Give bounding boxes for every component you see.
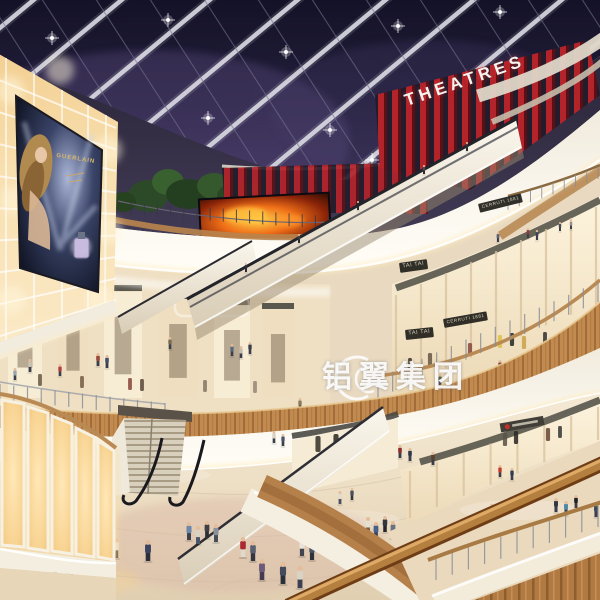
- person: [383, 519, 387, 526]
- person: [510, 470, 513, 475]
- person: [105, 358, 109, 363]
- person: [466, 144, 469, 148]
- mannequin: [514, 431, 518, 444]
- person: [570, 222, 573, 226]
- person: [559, 224, 562, 228]
- mannequin: [315, 436, 320, 452]
- mannequin: [80, 376, 84, 388]
- scene-canvas: [0, 0, 600, 600]
- mannequin: [503, 433, 507, 446]
- person: [240, 541, 246, 549]
- person: [186, 526, 191, 534]
- person: [272, 433, 275, 438]
- person: [205, 524, 210, 531]
- person: [564, 504, 568, 510]
- poster-model-face: [35, 147, 47, 163]
- person: [145, 544, 151, 553]
- person: [527, 230, 530, 234]
- person: [280, 566, 286, 575]
- person: [554, 501, 558, 507]
- person: [374, 525, 379, 532]
- person: [13, 370, 16, 375]
- person: [398, 448, 402, 453]
- mannequin: [140, 379, 144, 391]
- person: [96, 356, 100, 361]
- person: [245, 265, 248, 269]
- person: [497, 234, 500, 238]
- mannequin: [128, 378, 132, 390]
- mannequin: [558, 426, 562, 438]
- mall-atrium-rendering: THEATRES TAI TAI TAI TAI CERRUTI 1881 CE…: [0, 0, 600, 600]
- person: [281, 436, 284, 441]
- person: [536, 232, 539, 236]
- mannequin: [546, 428, 550, 441]
- mannequin: [253, 381, 257, 393]
- person: [213, 528, 218, 536]
- person: [230, 346, 233, 351]
- person: [195, 530, 200, 538]
- person: [431, 455, 435, 460]
- person: [298, 236, 301, 240]
- person: [248, 344, 251, 349]
- person: [298, 400, 301, 405]
- person: [408, 451, 412, 456]
- person: [250, 545, 256, 553]
- person: [574, 498, 578, 503]
- mannequin: [38, 374, 42, 386]
- person: [28, 362, 32, 367]
- mannequin: [522, 336, 526, 349]
- mannequin: [203, 380, 207, 392]
- person: [168, 339, 171, 344]
- person: [366, 520, 371, 527]
- person: [350, 490, 353, 495]
- person: [259, 563, 265, 572]
- person: [239, 348, 242, 353]
- person: [357, 203, 360, 207]
- person: [594, 506, 598, 512]
- person: [338, 494, 342, 499]
- watermark: 铝翼集团: [322, 352, 470, 396]
- person: [423, 167, 426, 171]
- person: [58, 366, 61, 371]
- person: [498, 467, 501, 472]
- watermark-text: 铝翼集团: [322, 352, 470, 396]
- person: [297, 570, 303, 579]
